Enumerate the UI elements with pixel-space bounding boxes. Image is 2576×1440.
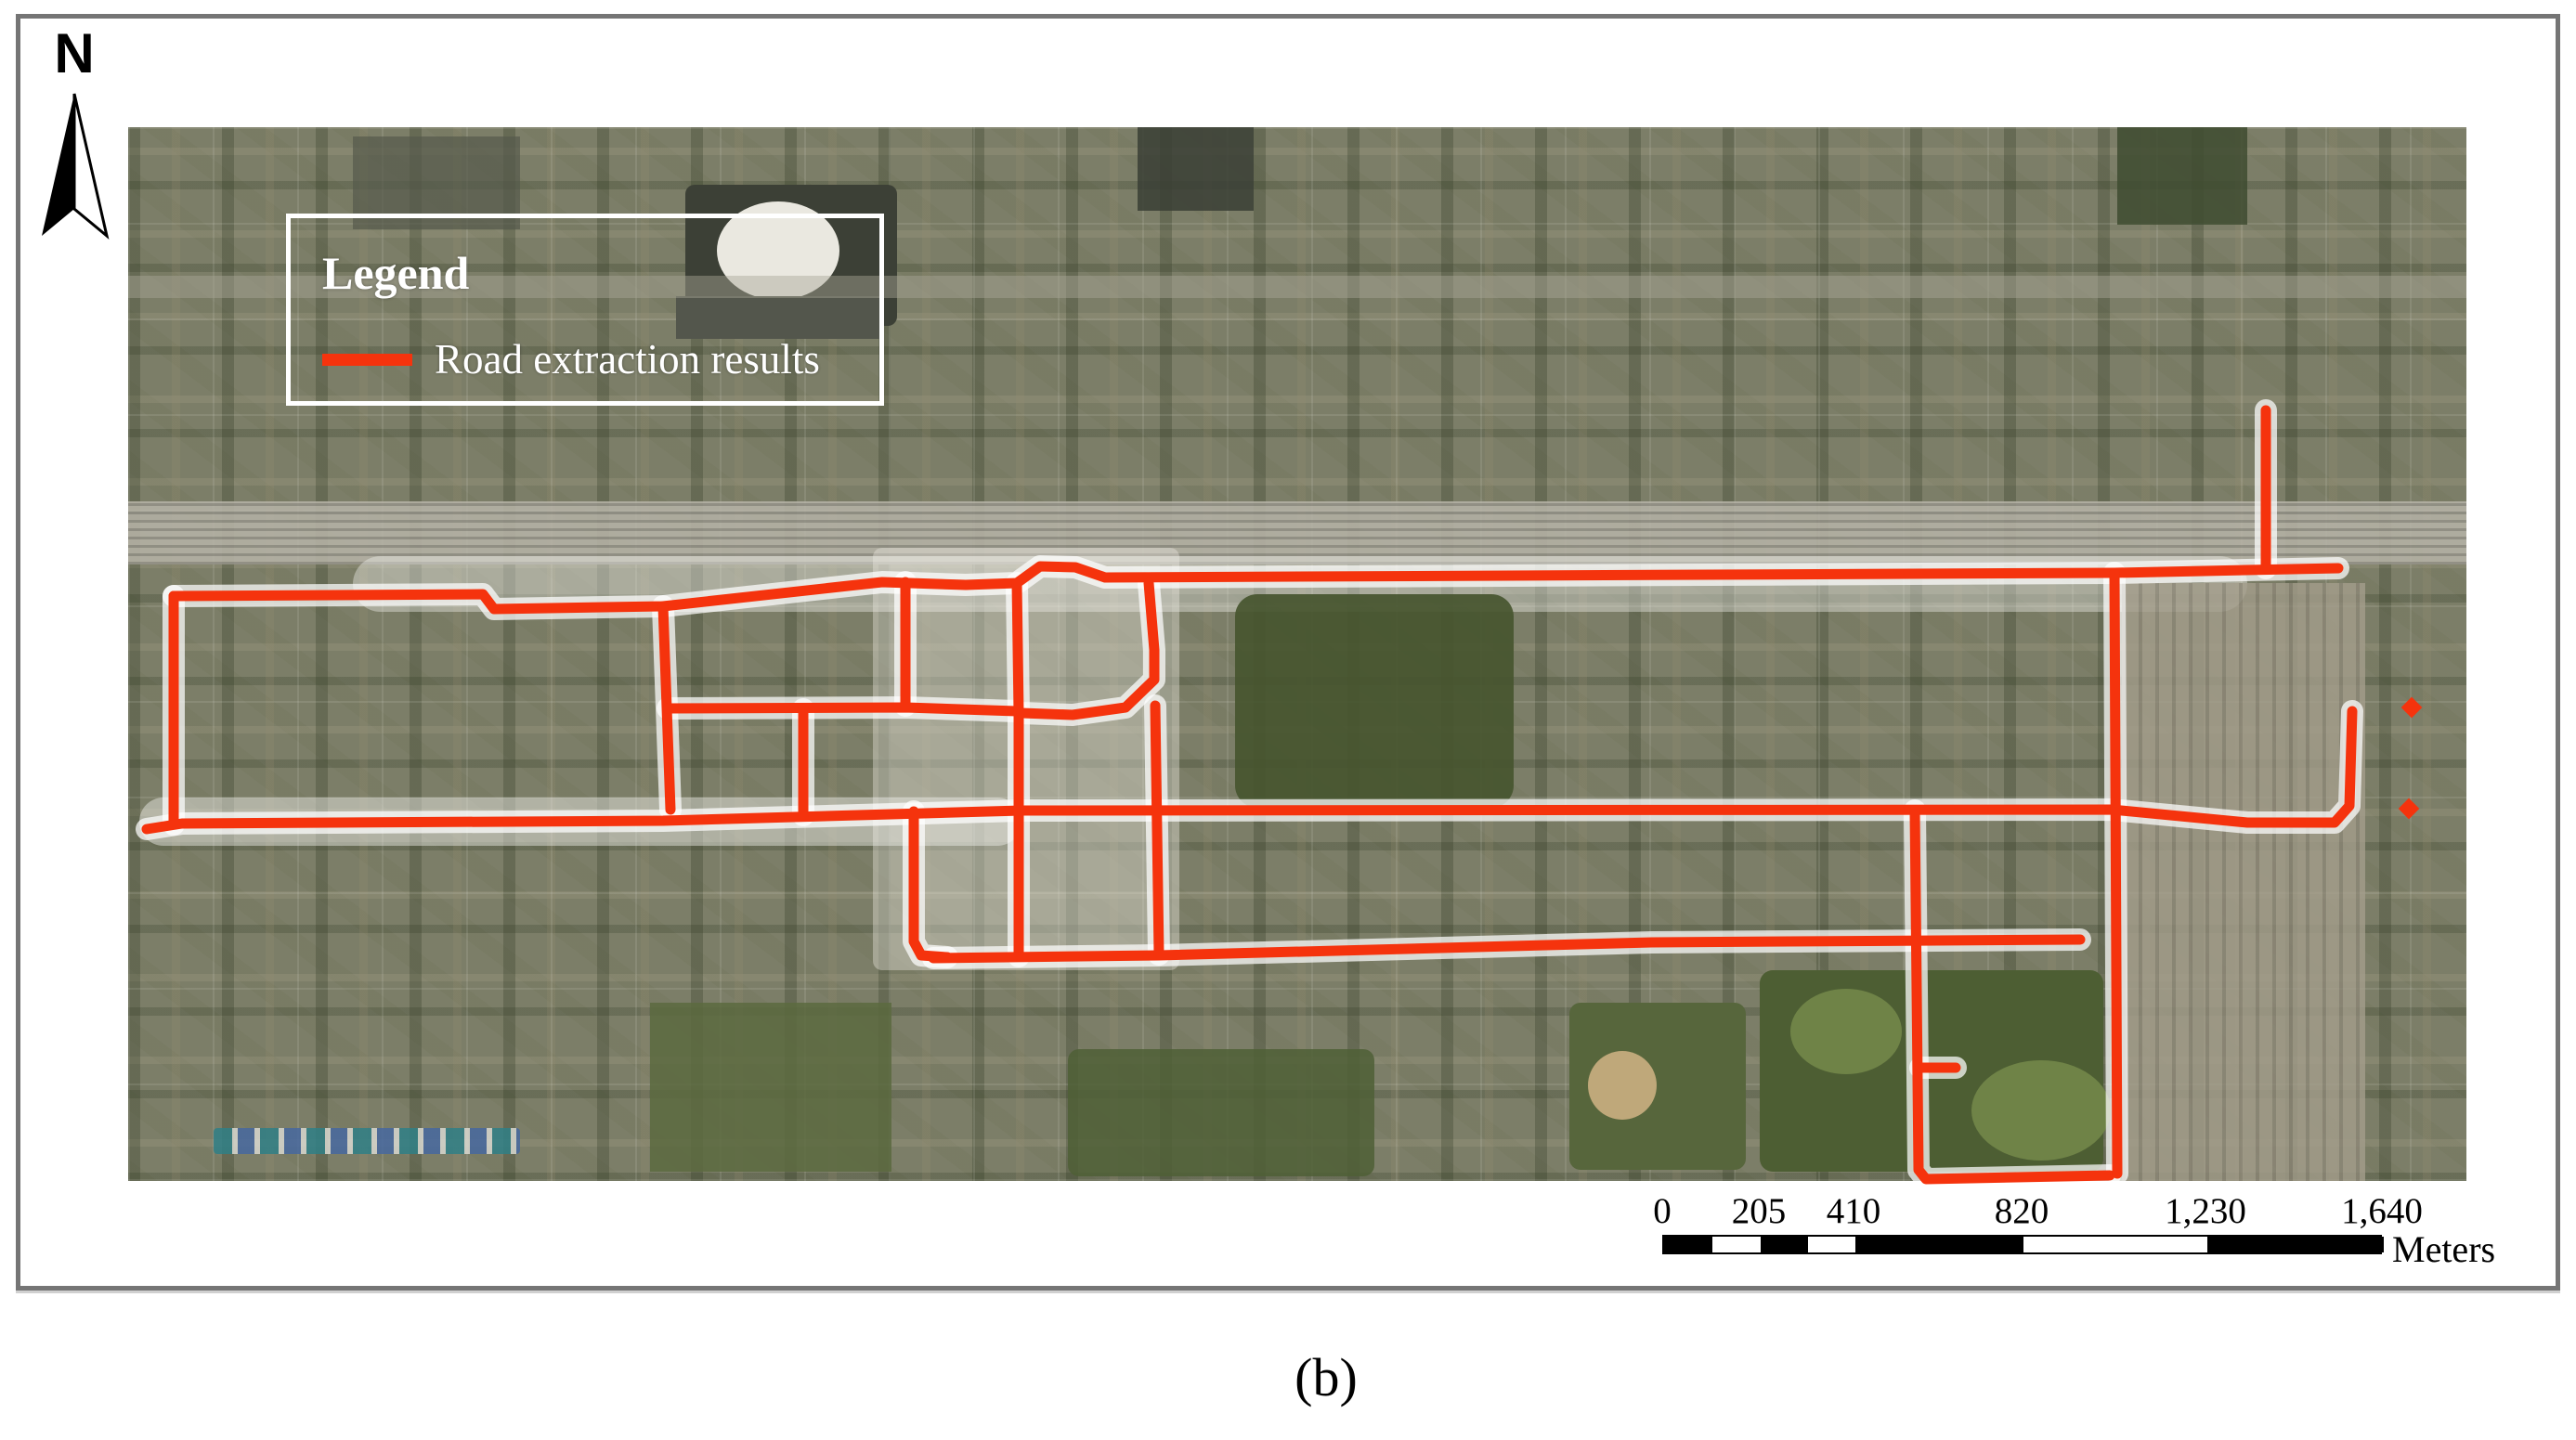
railway-corridor [128, 501, 2466, 564]
road-line-swatch [322, 354, 412, 366]
white-snow-zone [873, 548, 1179, 970]
park-area [1068, 1049, 1374, 1176]
rail-yard [2122, 583, 2365, 1181]
legend-item-label: Road extraction results [435, 335, 820, 383]
park-area [1235, 594, 1514, 808]
snow-strip-mid-road [139, 798, 1021, 846]
train-cars [214, 1128, 520, 1154]
map-legend: Legend Road extraction results [286, 214, 884, 406]
dark-roof-block [1138, 127, 1254, 211]
sports-field [1971, 1060, 2111, 1161]
legend-title: Legend [322, 246, 469, 300]
north-arrow-left-half [42, 94, 74, 236]
north-arrow-icon [34, 91, 114, 243]
figure-page: N Legend Road extraction results [0, 0, 2576, 1440]
trees-block [2117, 127, 2247, 225]
north-label: N [34, 26, 114, 82]
north-arrow-right-half [74, 94, 107, 236]
park-area [650, 1003, 891, 1172]
sports-field [1790, 989, 1902, 1074]
figure-caption: (b) [1187, 1346, 1465, 1408]
ballfield [1588, 1051, 1657, 1120]
legend-item: Road extraction results [322, 331, 820, 387]
